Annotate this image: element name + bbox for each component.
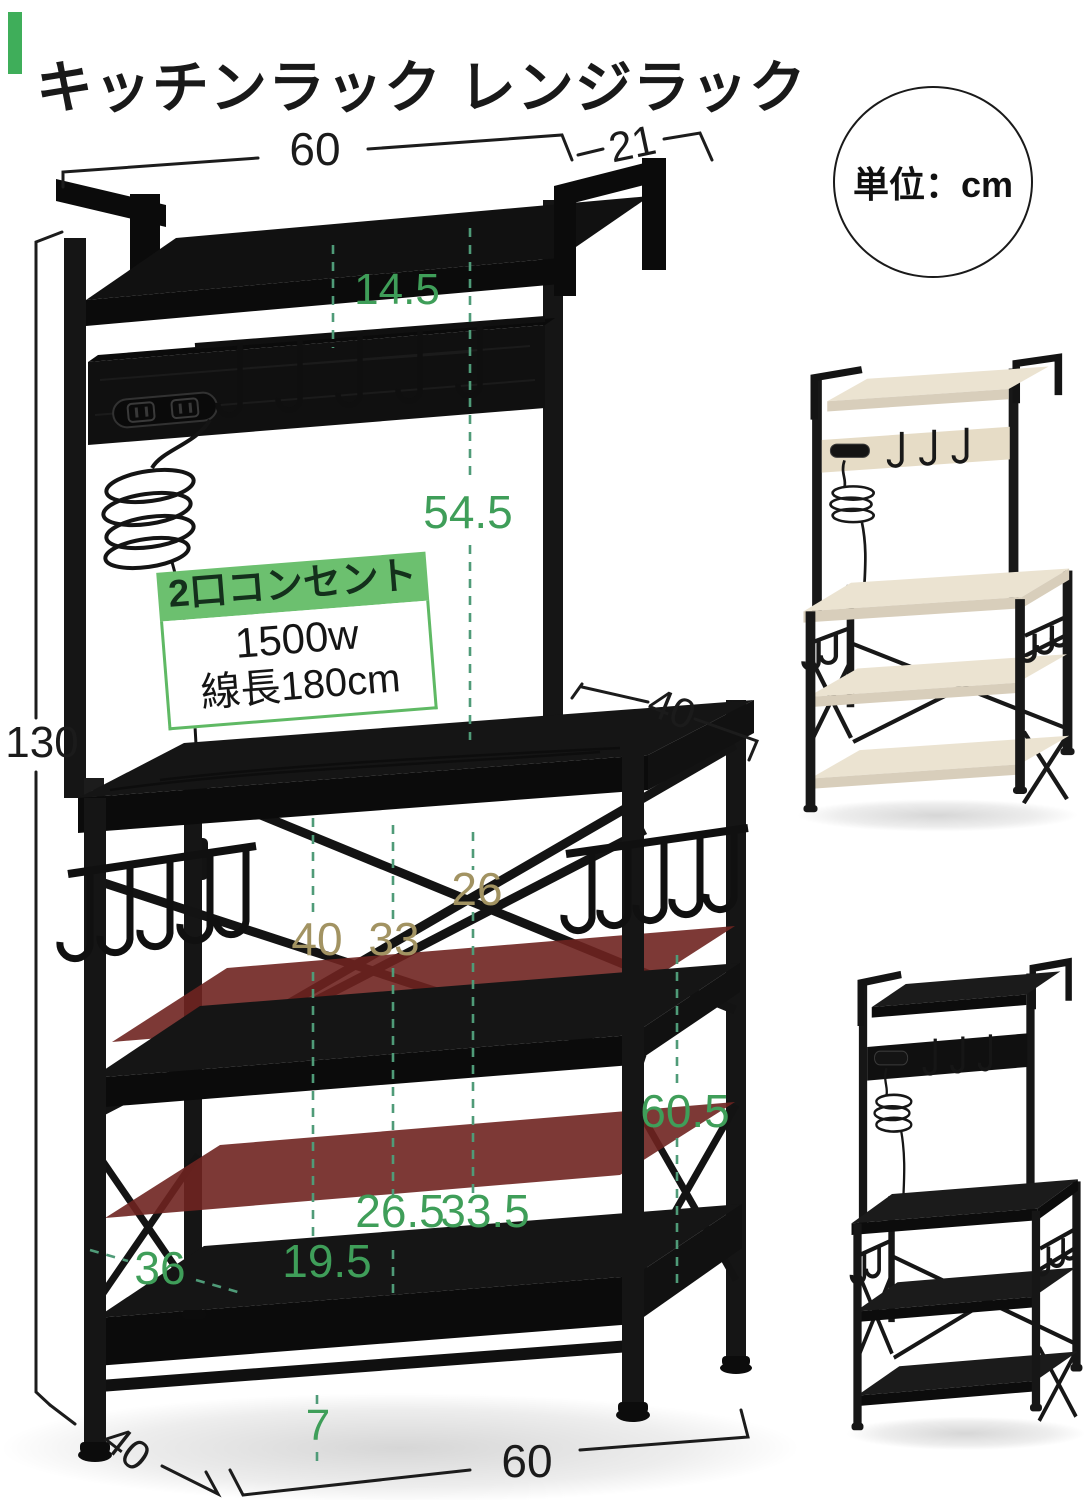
dim-base-inner-width: 36 [134,1242,185,1294]
unit-badge-text: 単位：cm [853,156,1013,208]
variant-black-image [846,962,1085,1450]
hooks-board [88,318,555,445]
dim-top-shelf-width: 60 [289,123,340,175]
dim-lower-clearance: 19.5 [282,1235,372,1287]
dim-base-width: 60 [501,1435,552,1487]
dim-total-height: 130 [5,718,78,767]
dim-counter-inner-mid: 33 [368,913,419,965]
dim-upper-section-height: 54.5 [423,486,513,538]
dim-hooks-drop: 14.5 [354,265,440,314]
dim-middle-gap-front: 26.5 [355,1185,445,1237]
outlet-spec-badge: 2口コンセント 1500w 線長180cm [156,552,438,731]
dim-counter-inner-width: 40 [291,913,342,965]
title-accent-bar [8,12,22,74]
dim-middle-gap-rear: 33.5 [440,1185,530,1237]
product-dimension-image: 60 21 14.5 54.5 130 40 26 40 33 60.5 26.… [0,0,1091,1500]
dim-foot-height: 7 [306,1401,330,1450]
dim-counter-diagonal: 26 [451,863,502,915]
variant-light-wood-image [797,357,1078,831]
page-title: キッチンラック レンジラック [36,42,807,124]
right-hook-rail [564,828,748,931]
dim-right-section-height: 60.5 [640,1085,730,1137]
unit-badge: 単位：cm [833,86,1033,278]
